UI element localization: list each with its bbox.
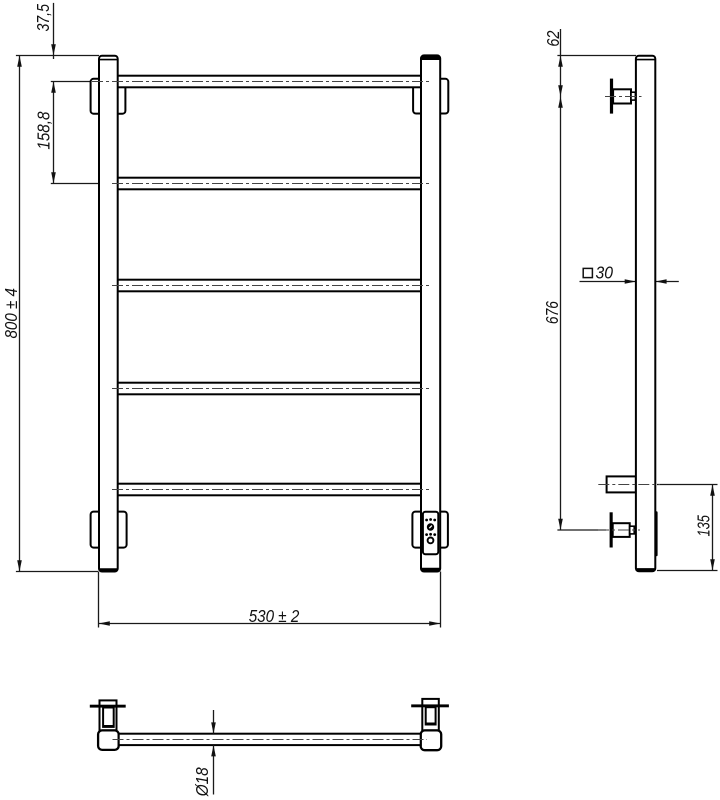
svg-text:800 ± 4: 800 ± 4 xyxy=(1,288,21,339)
svg-text:530 ± 2: 530 ± 2 xyxy=(249,606,300,626)
svg-text:62: 62 xyxy=(543,30,563,46)
svg-text:Ø18: Ø18 xyxy=(192,767,212,797)
svg-text:676: 676 xyxy=(542,301,562,324)
svg-text:135: 135 xyxy=(694,515,714,537)
svg-text:37,5: 37,5 xyxy=(33,4,53,32)
svg-text:158,8: 158,8 xyxy=(34,111,54,149)
svg-text:30: 30 xyxy=(596,262,614,282)
